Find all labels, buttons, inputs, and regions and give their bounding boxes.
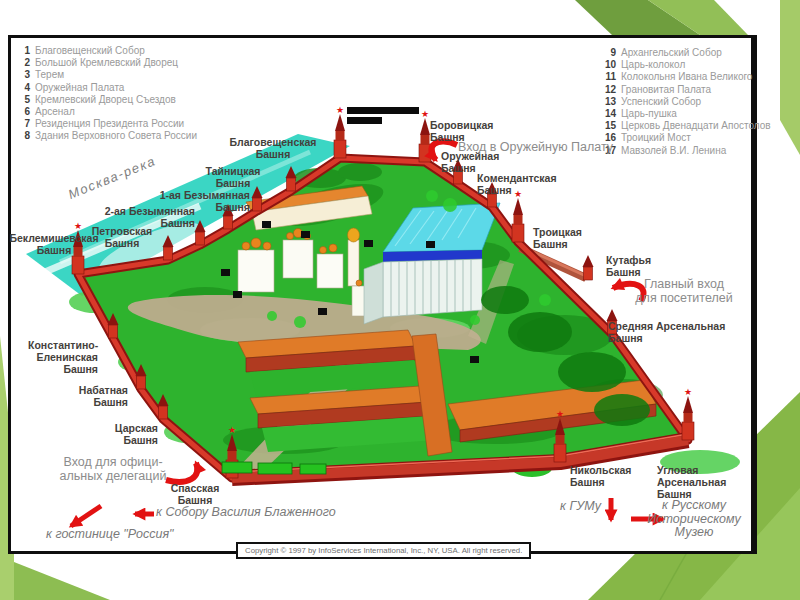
map-label-blagoveshchenskaya: Благовещенская Башня bbox=[225, 137, 321, 161]
map-label-nikolskaya: Никольская Башня bbox=[570, 465, 642, 489]
entrance-label-main-entrance: Главный вход для посетителей bbox=[628, 277, 740, 305]
entrance-label-delegation-entrance: Вход для офици- альных делегаций bbox=[56, 455, 170, 483]
map-label-komendantskaya: Комендантская Башня bbox=[477, 173, 589, 197]
entrance-label-armoury-entrance: Вход в Оружейную Палату bbox=[458, 140, 613, 154]
map-label-taynitskaya: Тайницкая Башня bbox=[200, 166, 266, 190]
map-label-nabatnaya: Набатная Башня bbox=[78, 385, 128, 409]
map-label-spasskaya: Спасская Башня bbox=[168, 483, 222, 507]
direction-label-to-st-basil: к Собору Василия Блаженного bbox=[156, 506, 336, 520]
slide: { "legend_left": [ {"num":"1","label":"Б… bbox=[0, 0, 800, 600]
map-label-konstantino: Константино- Еленинская Башня bbox=[28, 340, 98, 376]
redaction-bar-2 bbox=[347, 117, 382, 124]
copyright-box: Copyright © 1997 by InfoServices Interna… bbox=[236, 542, 531, 559]
copyright-text: Copyright © 1997 by InfoServices Interna… bbox=[245, 546, 522, 555]
direction-label-to-history-museum: к Русскому Историческому Музею bbox=[646, 499, 742, 540]
map-label-srednyaya: Средняя Арсенальная Башня bbox=[608, 321, 726, 345]
map-label-kutafya: Кутафья Башня bbox=[606, 255, 666, 279]
map-label-troitskaya: Троицкая Башня bbox=[533, 227, 595, 251]
map-label-uglovaya: Угловая Арсенальная Башня bbox=[657, 465, 739, 501]
map-labels-layer: Благовещенская БашняТайницкая Башня1-ая … bbox=[0, 0, 800, 600]
map-label-beklemishevskaya: Беклемишевская Башня bbox=[8, 233, 100, 257]
redaction-bar-1 bbox=[347, 107, 419, 114]
direction-label-to-gum: к ГУМу bbox=[560, 500, 601, 514]
direction-label-to-rossiya: к гостинице "Россия" bbox=[46, 528, 174, 542]
map-label-tsarskaya: Царская Башня bbox=[113, 423, 158, 447]
